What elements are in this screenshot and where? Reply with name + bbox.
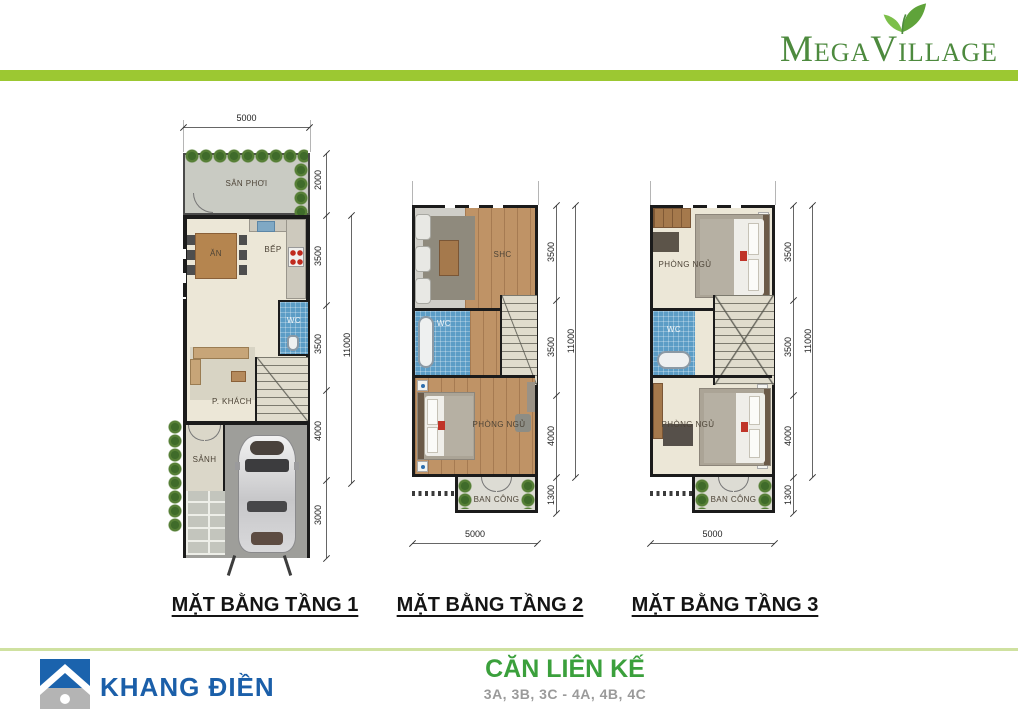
- dresser: [653, 232, 679, 252]
- dimension-line-bottom: [412, 543, 538, 544]
- dimension-label-width: 5000: [412, 529, 538, 539]
- dimension-line-right: [326, 153, 327, 558]
- slide-can-lien-ke: MEGAVILLAGE 5000 SÂN PHƠI BẾP: [0, 0, 1018, 720]
- extension-line: [650, 181, 651, 205]
- room-label-an: ĂN: [195, 249, 237, 258]
- footer-divider-line: [0, 648, 1018, 651]
- room-san-phoi: SÂN PHƠI: [183, 153, 310, 215]
- dining-chairs: [239, 235, 247, 279]
- room-label-wc: WC: [429, 319, 459, 328]
- dimension-label: 4000: [546, 416, 558, 456]
- toilet: [287, 335, 299, 351]
- interior-wall: [653, 375, 772, 378]
- room-label-phong-ngu: PHÒNG NGỦ: [465, 420, 533, 429]
- room-label-sanh: SẢNH: [186, 455, 223, 464]
- dimension-label: 4000: [313, 411, 325, 451]
- gate-post: [227, 555, 236, 576]
- megavillage-wordmark: MEGAVILLAGE: [780, 28, 996, 71]
- paving-bricks: [186, 491, 225, 555]
- brand-village: VILLAGE: [870, 28, 998, 71]
- hall-wood-floor: [470, 311, 500, 375]
- dimension-label: 3500: [546, 232, 558, 272]
- stairs: [255, 357, 308, 421]
- dining-chairs: [187, 235, 195, 279]
- room-label-wc: WC: [657, 325, 691, 334]
- bathtub: [657, 351, 691, 369]
- dimension-label: 4000: [783, 416, 795, 456]
- balcony-floor2: BAN CÔNG: [455, 477, 538, 513]
- dimension-label-width: 5000: [650, 529, 775, 539]
- property-dashes: [650, 491, 692, 496]
- floor1-main-block: BẾP ĂN WC P. KHÁCH: [183, 215, 310, 425]
- plan-title-floor1: MẶT BẰNG TẦNG 1: [160, 594, 370, 617]
- hedge: [294, 163, 309, 215]
- extension-line: [538, 181, 539, 205]
- nightstand: [417, 380, 428, 391]
- room-wc-floor1: WC: [278, 300, 310, 356]
- kitchen-sink: [257, 221, 275, 232]
- dimension-label-width: 5000: [183, 113, 310, 123]
- door-arc: [718, 477, 733, 492]
- wardrobe: [527, 382, 535, 412]
- window-gaps: [683, 205, 753, 208]
- room-label-bep: BẾP: [253, 245, 293, 254]
- room-sanh: SẢNH: [186, 425, 225, 491]
- dimension-label: 2000: [313, 160, 325, 200]
- dimension-label: 3500: [546, 327, 558, 367]
- sofa: [193, 347, 249, 359]
- door-arc: [481, 477, 496, 492]
- door-arc: [205, 425, 221, 441]
- sofa-arm: [190, 359, 201, 385]
- balcony-plants: [458, 479, 472, 509]
- stairs: [500, 295, 537, 385]
- plan-title-floor2: MẶT BẰNG TẦNG 2: [385, 594, 595, 617]
- extension-line: [412, 181, 413, 205]
- hedge: [185, 149, 308, 163]
- balcony-plants: [758, 479, 772, 509]
- cabinet: [653, 383, 663, 439]
- dimension-label: 1300: [783, 475, 795, 515]
- floor-plan-3: PHÒNG NGỦ WC PHÒNG NGỦ: [638, 195, 848, 565]
- balcony-plants: [695, 479, 709, 509]
- room-label-ban-cong: BAN CÔNG: [458, 495, 535, 504]
- product-title: CĂN LIÊN KẾ: [440, 655, 690, 684]
- door-arc: [734, 477, 749, 492]
- megavillage-logo: MEGAVILLAGE: [780, 2, 996, 66]
- coffee-table: [231, 371, 246, 382]
- dimension-label-total: 11000: [566, 321, 578, 361]
- house-icon: [40, 659, 90, 709]
- dimension-line-bottom: [650, 543, 775, 544]
- coffee-table: [439, 240, 459, 276]
- room-label-phong-ngu-1: PHÒNG NGỦ: [655, 260, 715, 269]
- room-label-phong-ngu-2: PHÒNG NGỦ: [655, 420, 721, 429]
- sofa: [415, 246, 431, 272]
- dimension-label-total: 11000: [803, 321, 815, 361]
- header-divider-band: [0, 70, 1018, 81]
- dimension-label: 3500: [783, 327, 795, 367]
- nightstand: [417, 461, 428, 472]
- closet: [653, 208, 691, 228]
- company-name: KHANG ĐIỀN: [100, 672, 275, 703]
- floor2-main-block: SHC WC PHÒNG NGỦ: [412, 205, 538, 477]
- room-label-wc: WC: [280, 316, 308, 325]
- stairs: [713, 295, 774, 385]
- room-label-san-phoi: SÂN PHƠI: [185, 179, 308, 188]
- door-arc: [188, 425, 204, 441]
- dimension-label-total: 11000: [342, 325, 354, 365]
- plan-title-floor3: MẶT BẰNG TẦNG 3: [620, 594, 830, 617]
- property-dashes: [412, 491, 455, 496]
- bed: [695, 214, 770, 298]
- sofa: [415, 278, 431, 304]
- floor1-lower-block: SẢNH: [183, 425, 310, 558]
- window-gaps: [183, 249, 186, 299]
- hedge: [168, 420, 182, 532]
- floor3-main-block: PHÒNG NGỦ WC PHÒNG NGỦ: [650, 205, 775, 477]
- door-arc: [497, 477, 512, 492]
- room-label-ban-cong: BAN CÔNG: [695, 495, 772, 504]
- dimension-label: 3000: [313, 495, 325, 535]
- dimension-label: 3500: [313, 324, 325, 364]
- dimension-label: 3500: [783, 232, 795, 272]
- balcony-floor3: BAN CÔNG: [692, 477, 775, 513]
- room-wc-floor2: WC: [415, 311, 470, 375]
- dimension-label: 1300: [546, 475, 558, 515]
- car: [238, 435, 296, 553]
- dimension-label: 3500: [313, 236, 325, 276]
- sofa: [415, 214, 431, 240]
- dimension-line-top: [183, 127, 310, 128]
- khang-dien-logo: [40, 659, 90, 714]
- gate-post: [283, 555, 292, 576]
- room-wc-floor3: WC: [653, 311, 695, 375]
- floor-plan-1: 5000 SÂN PHƠI BẾP ĂN WC: [165, 112, 375, 612]
- product-units: 3A, 3B, 3C - 4A, 4B, 4C: [440, 686, 690, 702]
- balcony-plants: [521, 479, 535, 509]
- door-arc: [193, 193, 213, 213]
- brand-mega: MEGA: [780, 28, 870, 71]
- room-label-shc: SHC: [475, 250, 530, 259]
- floor-plan-2: SHC WC PHÒNG NGỦ: [400, 195, 610, 565]
- extension-line: [775, 181, 776, 205]
